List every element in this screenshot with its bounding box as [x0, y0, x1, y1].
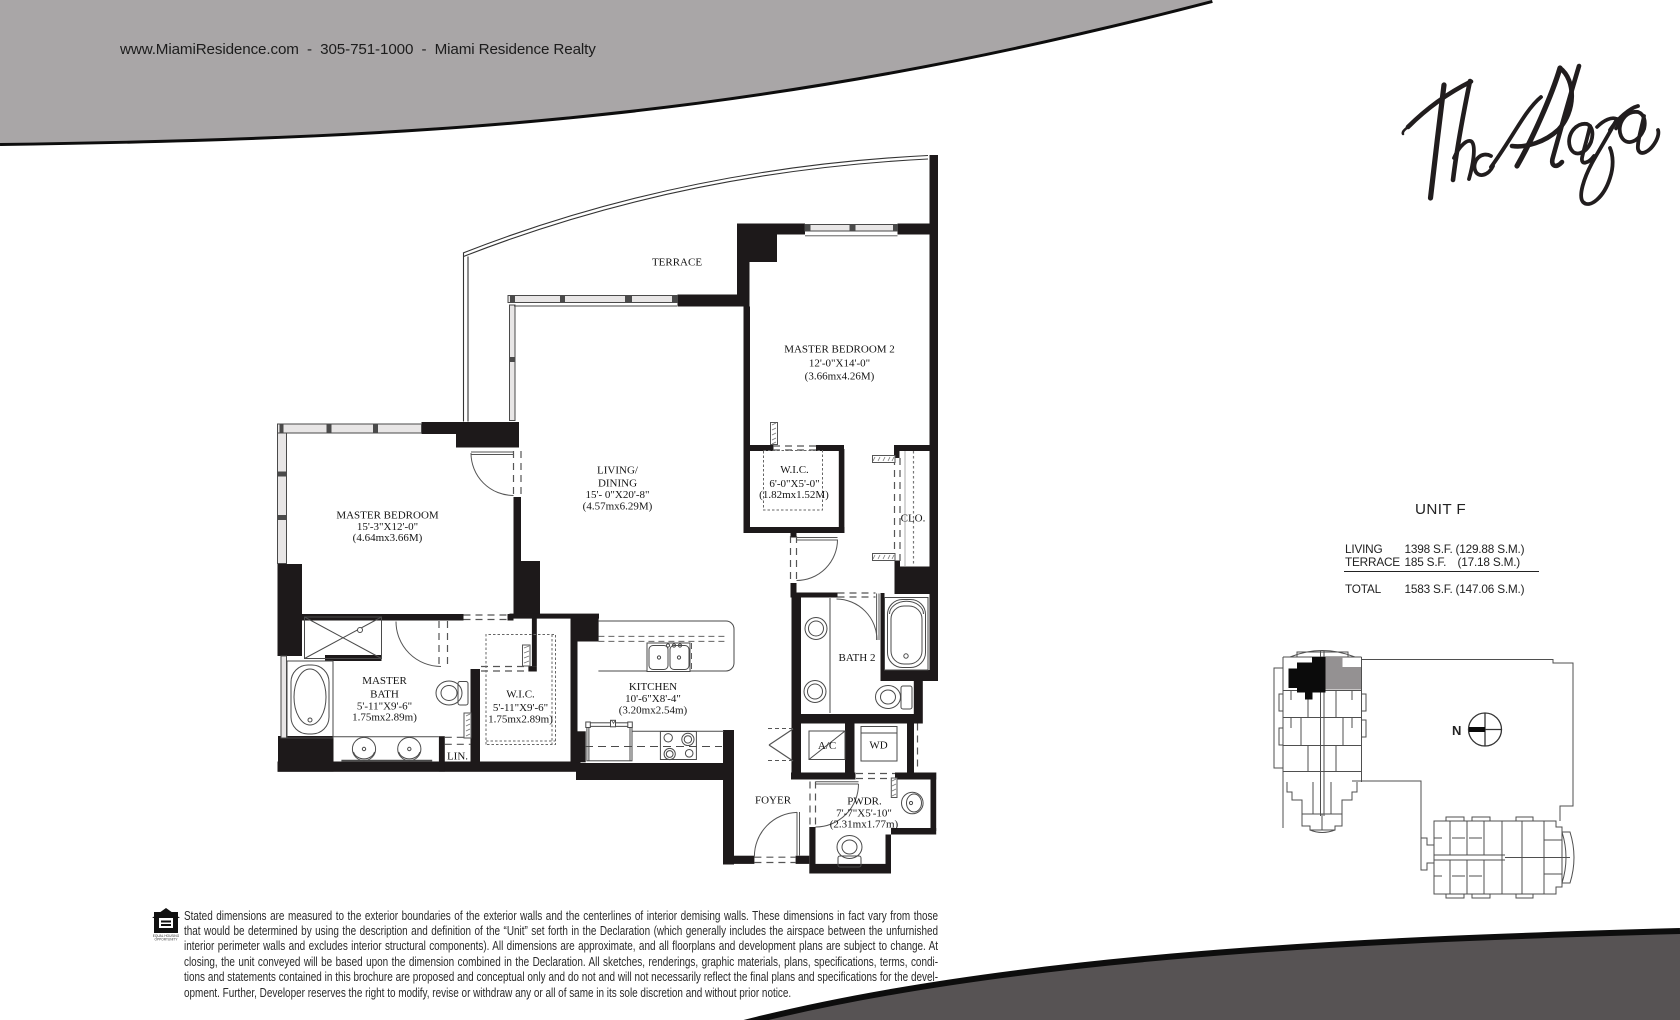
svg-text:W.I.C.: W.I.C. — [506, 689, 535, 701]
svg-text:MASTER BEDROOM 2: MASTER BEDROOM 2 — [784, 344, 895, 356]
svg-text:1.75mx2.89m): 1.75mx2.89m) — [352, 712, 417, 724]
svg-text:1.75mx2.89m): 1.75mx2.89m) — [488, 714, 553, 726]
svg-text:LIVING/: LIVING/ — [597, 465, 639, 477]
svg-text:5'-11"X9'-6": 5'-11"X9'-6" — [493, 702, 548, 714]
svg-text:MASTER BEDROOM: MASTER BEDROOM — [336, 510, 439, 522]
svg-text:W.I.C.: W.I.C. — [780, 464, 809, 476]
svg-text:N: N — [1452, 723, 1461, 738]
svg-text:10'-6"X8'-4": 10'-6"X8'-4" — [625, 693, 681, 705]
svg-text:CLO.: CLO. — [901, 513, 926, 525]
svg-text:(3.66mx4.26M): (3.66mx4.26M) — [805, 371, 875, 383]
svg-text:MASTER: MASTER — [362, 675, 407, 687]
svg-text:A/C: A/C — [818, 740, 836, 752]
svg-text:TERRACE: TERRACE — [652, 257, 702, 269]
svg-text:LIN.: LIN. — [447, 750, 468, 762]
svg-text:WD: WD — [869, 740, 887, 752]
svg-text:12'-0"X14'-0": 12'-0"X14'-0" — [809, 358, 870, 370]
svg-text:PWDR.: PWDR. — [847, 796, 882, 808]
svg-text:(2.31mx1.77m): (2.31mx1.77m) — [830, 819, 899, 831]
svg-text:FOYER: FOYER — [755, 795, 792, 807]
svg-text:OPPORTUNITY: OPPORTUNITY — [155, 938, 179, 942]
svg-text:(3.20mx2.54m): (3.20mx2.54m) — [619, 705, 688, 717]
svg-text:(1.82mx1.52M): (1.82mx1.52M) — [759, 489, 829, 501]
svg-text:(4.57mx6.29M): (4.57mx6.29M) — [583, 501, 653, 513]
svg-text:15'- 0"X20'-8": 15'- 0"X20'-8" — [586, 489, 650, 501]
svg-text:BATH 2: BATH 2 — [839, 652, 876, 664]
svg-text:DINING: DINING — [598, 478, 637, 490]
svg-text:(4.64mx3.66M): (4.64mx3.66M) — [353, 532, 423, 544]
svg-text:BATH: BATH — [370, 689, 399, 701]
svg-text:KITCHEN: KITCHEN — [629, 681, 677, 693]
